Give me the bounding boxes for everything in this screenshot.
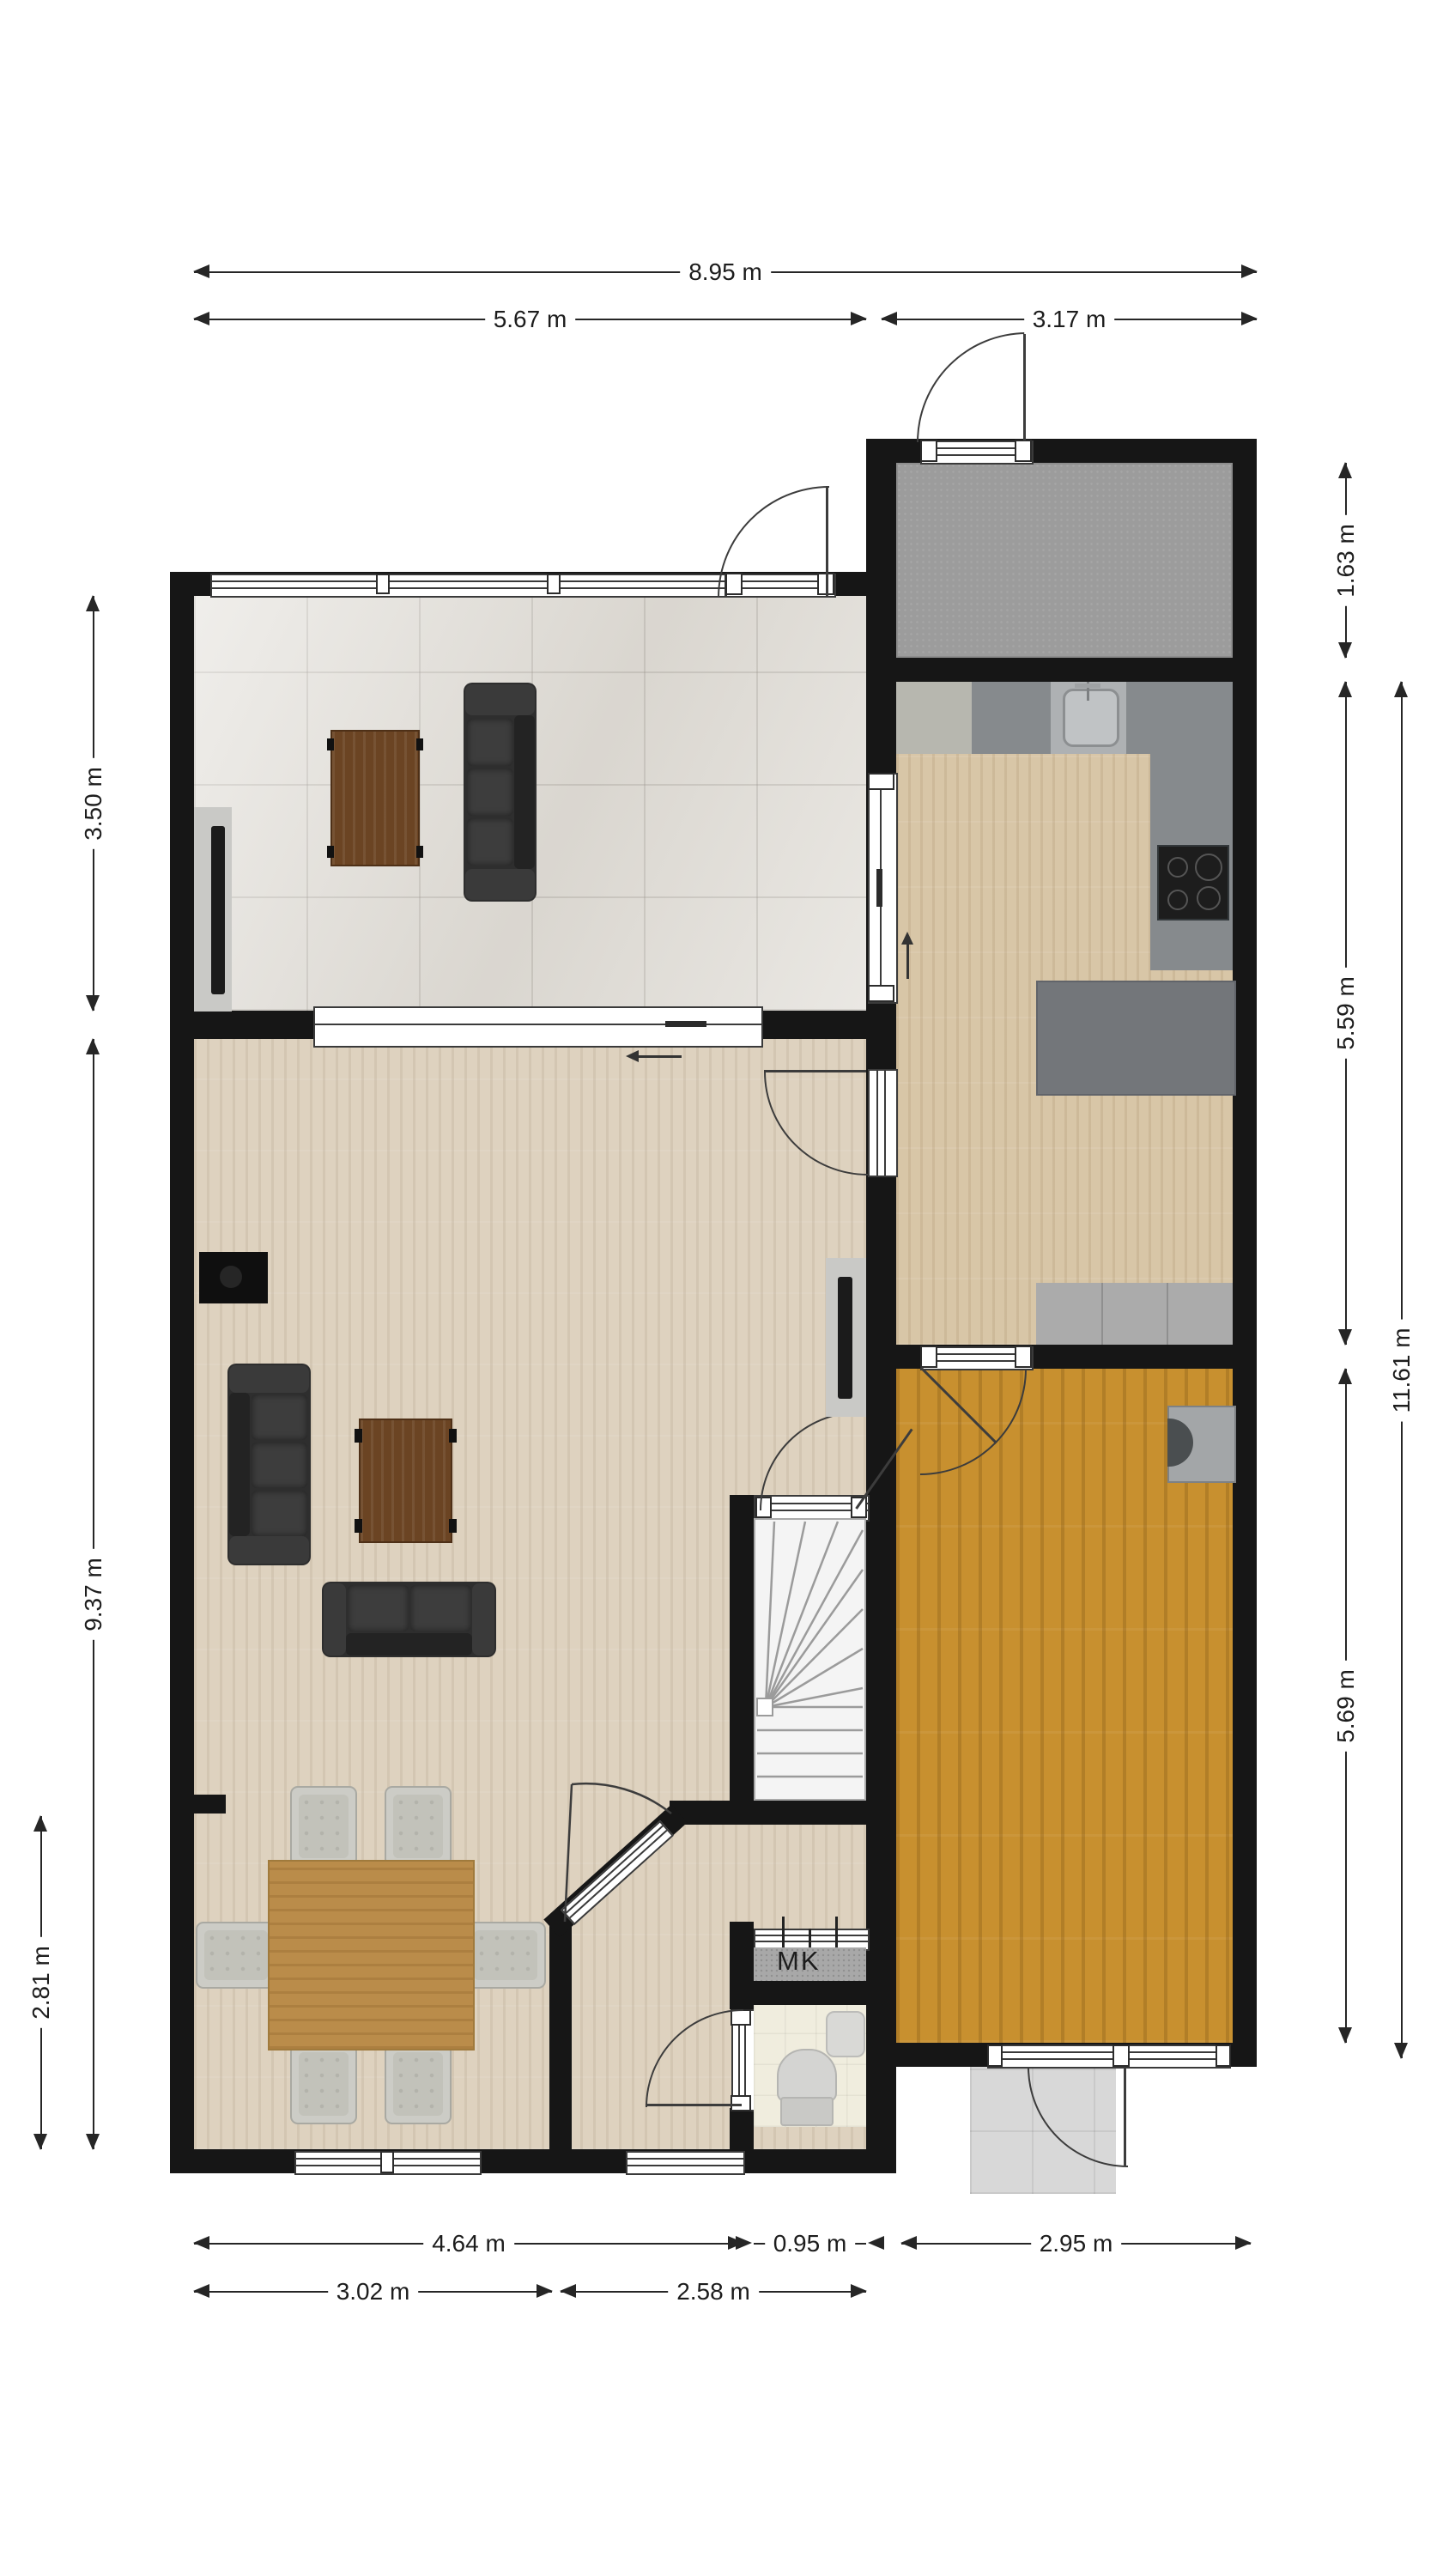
dimension-porch-depth: 1.63 m xyxy=(1345,463,1347,658)
kitchen-counter-top-right xyxy=(1126,682,1233,754)
coffee-table-living xyxy=(359,1419,452,1543)
direction-arrow-icon xyxy=(637,1055,682,1058)
wall-kitchen-top xyxy=(866,658,1257,682)
wood-stove xyxy=(199,1252,268,1303)
kitchen-sink-basin-icon xyxy=(1063,689,1119,747)
toilet-wc-base xyxy=(780,2097,834,2126)
dimension-dining-nook-depth: 2.81 m xyxy=(40,1816,42,2149)
sofa-three-seat xyxy=(227,1364,311,1565)
dimension-sitting-room-depth: 3.50 m xyxy=(93,596,94,1011)
wall-hall-west-stub xyxy=(549,1923,572,2149)
wall-hall-top xyxy=(670,1801,866,1825)
tv-sitting xyxy=(211,826,225,994)
wall-pilaster-notch xyxy=(177,1795,226,1814)
dining-chair xyxy=(290,2044,357,2124)
sliding-handle xyxy=(876,869,882,907)
cabinet-seam xyxy=(1101,1283,1103,1345)
dining-chair xyxy=(196,1922,276,1989)
door-leaf xyxy=(646,2104,742,2106)
dimension-right-total-depth: 11.61 m xyxy=(1401,682,1403,2058)
burner-icon xyxy=(1195,854,1222,881)
door-jamb xyxy=(1216,2044,1231,2067)
dimension-lower-left-width: 4.64 m xyxy=(194,2243,743,2245)
sliding-handle xyxy=(665,1021,706,1027)
kitchen-counter-bottom xyxy=(1036,1283,1233,1345)
wall-stairs-west xyxy=(730,1495,754,1825)
window-mullion xyxy=(380,2151,394,2173)
direction-arrow-head-icon xyxy=(901,932,913,945)
sofa-two-seat xyxy=(322,1582,496,1657)
door-leaf xyxy=(1023,332,1026,440)
dimension-upper-right-width: 3.17 m xyxy=(882,319,1257,320)
door-leaf xyxy=(764,1070,866,1072)
kitchen-island xyxy=(1036,981,1236,1096)
dimension-upper-left-width: 5.67 m xyxy=(194,319,866,320)
dimension-living-room-depth: 9.37 m xyxy=(93,1039,94,2149)
kitchen-faucet-icon xyxy=(1075,683,1100,688)
dimension-lower-right-width: 2.95 m xyxy=(901,2243,1251,2245)
wall-mk-toilet-divider xyxy=(754,1981,866,2005)
washer-unit xyxy=(1167,1406,1236,1483)
wall-living-bottom xyxy=(170,2149,866,2173)
direction-arrow-head-icon xyxy=(626,1050,639,1062)
door-leaf xyxy=(826,486,828,596)
dining-chair xyxy=(385,1786,452,1867)
wall-mk-west xyxy=(730,1922,754,2009)
stove-flue-icon xyxy=(220,1266,242,1288)
toilet-wc-bowl xyxy=(777,2049,837,2102)
door-jamb xyxy=(1015,440,1032,462)
burner-icon xyxy=(1167,857,1188,878)
dimension-kitchen-depth: 5.59 m xyxy=(1345,682,1347,1345)
dimension-dining-width: 3.02 m xyxy=(194,2291,552,2293)
window-cap xyxy=(868,773,894,790)
burner-icon xyxy=(1197,886,1221,910)
sliding-window-sitting-kitchen xyxy=(868,773,898,1004)
staircase xyxy=(754,1518,866,1801)
toilet-basin xyxy=(826,2011,865,2057)
door-jamb xyxy=(920,440,937,462)
dining-chair xyxy=(290,1786,357,1867)
kitchen-appliance-tall xyxy=(896,682,973,754)
sofa-sitting xyxy=(464,683,537,902)
kitchen-door xyxy=(868,1069,898,1177)
sliding-door-sitting-living xyxy=(313,1006,763,1048)
window-cap xyxy=(868,985,894,1002)
door-leaf xyxy=(1124,2067,1126,2166)
door-jamb xyxy=(987,2044,1003,2067)
dimension-hall-width: 2.58 m xyxy=(561,2291,866,2293)
window-hall-rear xyxy=(626,2151,745,2175)
door-jamb xyxy=(1015,1346,1032,1368)
window-mullion xyxy=(1113,2044,1130,2067)
door-swing-icon xyxy=(917,332,1027,442)
tv-living xyxy=(838,1277,852,1399)
direction-arrow-icon xyxy=(906,943,909,979)
stair-treads-icon xyxy=(755,1520,864,1799)
dining-chair xyxy=(465,1922,546,1989)
door-jamb xyxy=(920,1346,937,1368)
floor-plan-canvas: MK xyxy=(0,0,1449,2576)
window-sitting-front xyxy=(210,574,726,598)
cooktop xyxy=(1157,845,1229,920)
dining-table xyxy=(268,1860,475,2050)
mk-label: MK xyxy=(777,1946,821,1977)
burner-icon xyxy=(1167,890,1188,910)
window-mullion xyxy=(547,574,561,594)
kitchen-counter-top xyxy=(972,682,1051,754)
wall-toilet-west-lower xyxy=(730,2108,754,2149)
dimension-full-width: 8.95 m xyxy=(194,271,1257,273)
window-mullion xyxy=(376,574,390,594)
dimension-back-room-depth: 5.69 m xyxy=(1345,1369,1347,2043)
wall-left-exterior xyxy=(170,572,194,2173)
coffee-table-sitting xyxy=(330,730,420,866)
backroom-rear-window xyxy=(987,2044,1231,2069)
wall-right-exterior xyxy=(1233,439,1257,2067)
dimension-stair-bay-width: 0.95 m xyxy=(754,2243,866,2245)
porch-floor xyxy=(896,463,1233,658)
washer-door-icon xyxy=(1167,1419,1193,1467)
dining-chair xyxy=(385,2044,452,2124)
door-swing-icon xyxy=(541,1765,691,1932)
wall-main-vertical xyxy=(866,439,896,2173)
door-swing-icon xyxy=(718,486,829,598)
cabinet-seam xyxy=(1167,1283,1168,1345)
